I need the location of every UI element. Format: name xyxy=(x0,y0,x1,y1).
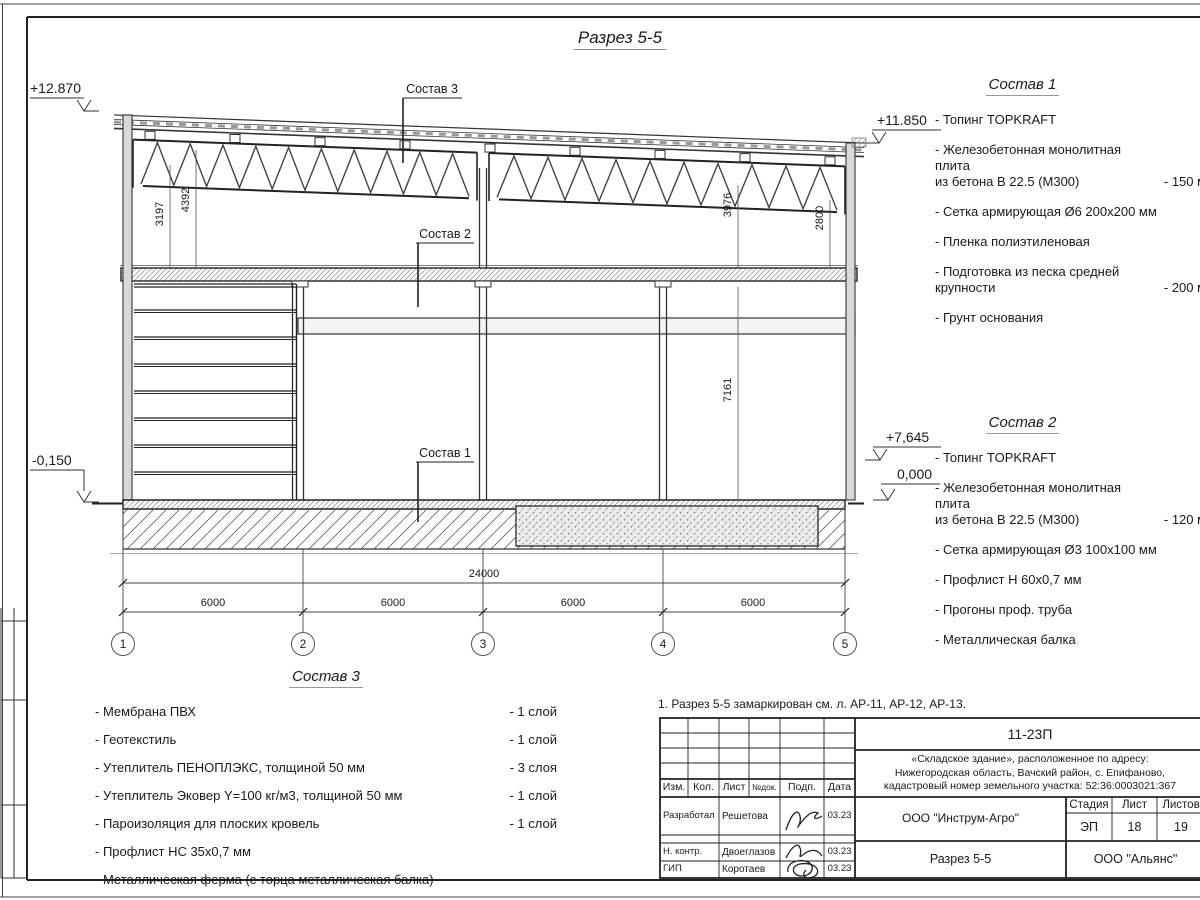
sostav3-title: Состав 3 xyxy=(95,668,557,685)
list-item: - Прогоны проф. труба xyxy=(935,602,1200,618)
list-item: - Геотекстиль- 1 слой xyxy=(95,732,557,748)
sheet-value: 18 xyxy=(1112,813,1157,841)
elev-0150: -0,150 xyxy=(32,452,72,468)
roof-and-truss xyxy=(114,115,864,475)
left-wall xyxy=(123,115,132,500)
list-item: - Мембрана ПВХ- 1 слой xyxy=(95,704,557,720)
elev-0000: 0,000 xyxy=(897,466,932,482)
lower-columns xyxy=(292,281,671,500)
row1-name: Решетова xyxy=(722,797,779,835)
stage-label: Стадия xyxy=(1066,797,1112,813)
axis-5: 5 xyxy=(842,637,849,651)
sheets-value: 19 xyxy=(1157,813,1200,841)
col-izm: Изм. xyxy=(660,779,688,797)
sheet-label: Лист xyxy=(1112,797,1157,813)
list-item: - Сетка армирующая Ø6 200х200 мм xyxy=(935,204,1200,220)
sostav2-list: Состав 2 - Топинг TOPKRAFT - Железобетон… xyxy=(935,414,1200,662)
sheets-label: Листов xyxy=(1157,797,1200,813)
elevation-marks xyxy=(30,98,941,502)
list-item: - Железобетонная монолитная плита из бет… xyxy=(935,142,1200,190)
signature-reshetova xyxy=(786,812,822,830)
axis-1: 1 xyxy=(120,637,127,651)
sostav1-list: Состав 1 - Топинг TOPKRAFT - Железобетон… xyxy=(935,76,1200,340)
dim-3976: 3976 xyxy=(722,193,734,217)
list-item: - Утеплитель Эковер Y=100 кг/м3, толщино… xyxy=(95,788,557,804)
elevation-roof-left xyxy=(30,98,99,111)
dim-span4: 6000 xyxy=(741,597,765,609)
signatures xyxy=(786,812,822,878)
row2-role: Н. контр. xyxy=(663,843,718,861)
dim-total: 24000 xyxy=(469,568,500,580)
list-item: - Профлист Н 60х0,7 мм xyxy=(935,572,1200,588)
vertical-dimension-texts: 3197 4392 3976 2800 7161 xyxy=(154,188,826,402)
dim-4392: 4392 xyxy=(180,188,192,212)
callout-sostav1: Состав 1 xyxy=(419,446,471,460)
col-doc: №док. xyxy=(749,779,780,797)
callout-sostav2: Состав 2 xyxy=(419,227,471,241)
list-item: - Железобетонная монолитная плита из бет… xyxy=(935,480,1200,528)
dim-7161: 7161 xyxy=(722,378,734,402)
right-wall xyxy=(846,143,855,500)
row2-date: 03.23 xyxy=(824,843,855,861)
list-item: - Топинг TOPKRAFT xyxy=(935,112,1200,128)
dim-span1: 6000 xyxy=(201,597,225,609)
signature-korotaev xyxy=(788,860,818,877)
note-text: 1. Разрез 5-5 замаркирован см. л. АР-11,… xyxy=(658,697,966,711)
elev-7645: +7,645 xyxy=(886,429,929,445)
dim-3197: 3197 xyxy=(154,202,166,226)
floor-beam xyxy=(298,318,855,334)
page-title: Разрез 5-5 xyxy=(500,28,740,48)
list-item: - Пленка полиэтиленовая xyxy=(935,234,1200,250)
row1-date: 03.23 xyxy=(824,797,855,835)
elevation-truss-right xyxy=(865,447,941,460)
grid-axis-numbers: 1 2 3 4 5 xyxy=(120,637,849,651)
list-item: - Сетка армирующая Ø3 100х100 мм xyxy=(935,542,1200,558)
sostav3-list: Состав 3 - Мембрана ПВХ- 1 слой - Геотек… xyxy=(95,668,557,900)
row3-name: Коротаев xyxy=(722,861,779,878)
signature-dvoeglazov xyxy=(786,845,822,858)
stage-value: ЭП xyxy=(1066,813,1112,841)
upper-column-axis3 xyxy=(480,168,487,268)
project-description: «Складское здание», расположенное по адр… xyxy=(858,750,1200,797)
doc-number: 11-23П xyxy=(855,718,1200,750)
list-item: - Утеплитель ПЕНОПЛЭКС, толщиной 50 мм- … xyxy=(95,760,557,776)
org-name: ООО "Альянс" xyxy=(1066,841,1200,878)
list-item: - Металлическая ферма (с торца металличе… xyxy=(95,872,557,888)
company-name: ООО "Инструм-Агро" xyxy=(855,797,1066,841)
left-stamp-strip xyxy=(1,608,27,878)
axis-3: 3 xyxy=(480,637,487,651)
row2-name: Двоеглазов xyxy=(722,843,779,861)
elevation-ground-right xyxy=(873,484,940,500)
list-item: - Топинг TOPKRAFT xyxy=(935,450,1200,466)
callout-sostav3: Состав 3 xyxy=(406,82,458,96)
list-item: - Подготовка из песка средней крупности-… xyxy=(935,264,1200,296)
col-data: Дата xyxy=(824,779,855,797)
row1-role: Разработал xyxy=(663,797,718,835)
dim-2800: 2800 xyxy=(814,206,826,230)
list-item: - Профлист НС 35х0,7 мм xyxy=(95,844,557,860)
dim-span2: 6000 xyxy=(381,597,405,609)
drawing-name: Разрез 5-5 xyxy=(855,841,1066,878)
row3-role: ГИП xyxy=(663,861,718,878)
floor-slab xyxy=(120,266,858,282)
dim-span3: 6000 xyxy=(561,597,585,609)
elevation-ground-left xyxy=(30,470,99,502)
dimension-chain xyxy=(119,549,849,632)
col-podp: Подп. xyxy=(780,779,824,797)
list-item: - Грунт основания xyxy=(935,310,1200,326)
sostav2-title: Состав 2 xyxy=(935,414,1110,431)
axis-4: 4 xyxy=(660,637,667,651)
list-item: - Пароизоляция для плоских кровель- 1 сл… xyxy=(95,816,557,832)
sostav1-title: Состав 1 xyxy=(935,76,1110,93)
elev-11850: +11.850 xyxy=(877,112,927,128)
row3-date: 03.23 xyxy=(824,861,855,878)
elev-12870: +12.870 xyxy=(30,80,81,96)
drawing-sheet: { "title": "Разрез 5-5", "note": "1. Раз… xyxy=(0,0,1200,900)
axis-2: 2 xyxy=(300,637,307,651)
list-item: - Металлическая балка xyxy=(935,632,1200,648)
elevation-roof-right xyxy=(852,130,941,147)
col-kol: Кол. xyxy=(688,779,719,797)
storage-rack xyxy=(134,284,297,500)
col-list: Лист xyxy=(719,779,749,797)
